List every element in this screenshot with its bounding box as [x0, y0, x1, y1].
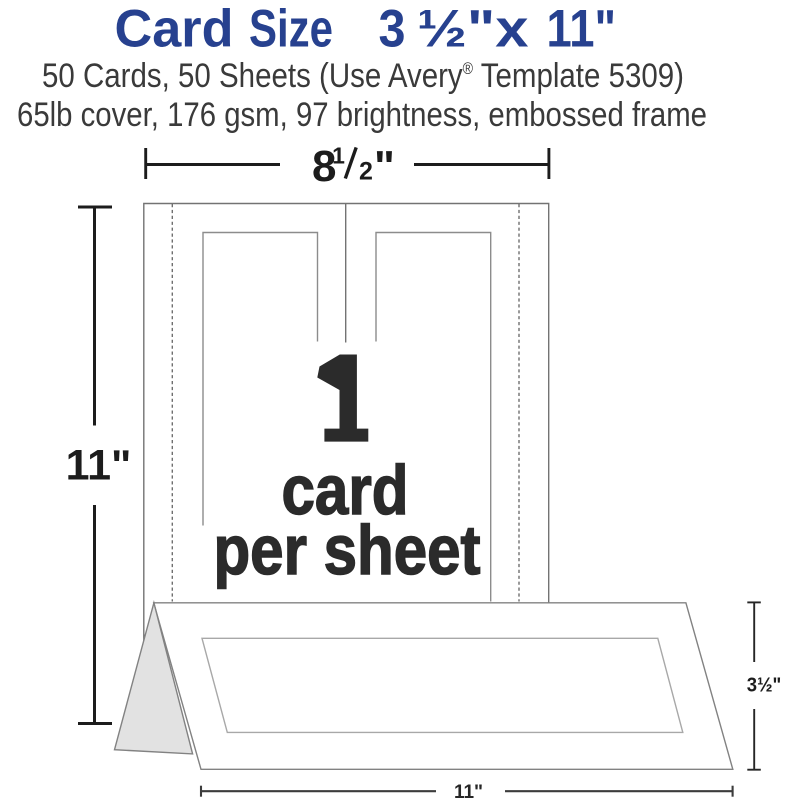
svg-text:11": 11": [66, 442, 132, 490]
svg-text:½"x: ½"x: [417, 0, 529, 59]
svg-text:3½": 3½": [747, 674, 782, 697]
svg-text:": ": [374, 142, 395, 191]
svg-text:50 Cards, 50 Sheets (Use Avery: 50 Cards, 50 Sheets (Use Avery® Template…: [42, 57, 684, 95]
svg-text:11": 11": [454, 782, 483, 800]
svg-text:65lb cover, 176 gsm, 97 bright: 65lb cover, 176 gsm, 97 brightness, embo…: [17, 96, 707, 134]
svg-text:11": 11": [547, 0, 617, 59]
svg-text:1: 1: [332, 143, 345, 169]
svg-text:per sheet: per sheet: [214, 511, 481, 589]
svg-text:Card: Card: [115, 0, 234, 59]
svg-text:3: 3: [379, 0, 406, 59]
svg-text:2: 2: [359, 158, 373, 186]
svg-text:Size: Size: [249, 0, 333, 59]
